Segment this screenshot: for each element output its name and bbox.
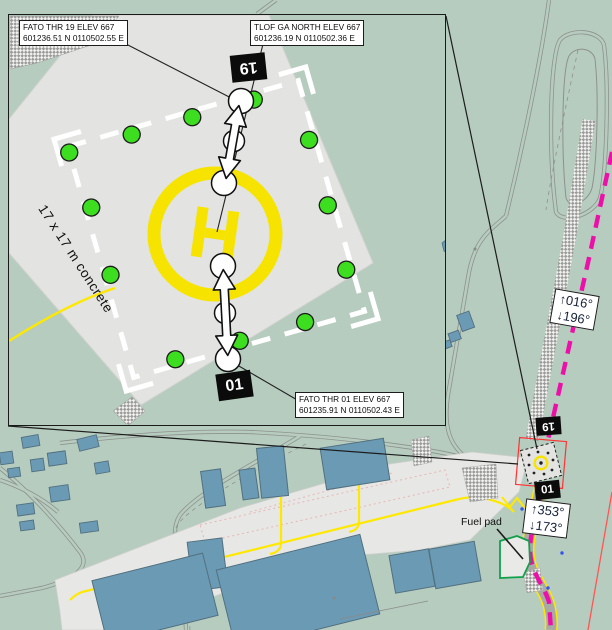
- south-bearing-down: ↓173°: [528, 517, 563, 537]
- fato-thr01-line2: 601235.91 N 0110502.43 E: [299, 405, 400, 416]
- fuel-pad-outline: [500, 536, 530, 578]
- heliport-chart: FATO THR 19 ELEV 667 601236.51 N 0110502…: [0, 0, 612, 630]
- map-thr19-badge: 19: [535, 416, 561, 436]
- inset-thr01-badge: 01: [215, 370, 253, 402]
- tlof-label: TLOF GA NORTH ELEV 667 601236.19 N 01105…: [250, 20, 364, 46]
- tlof-line2: 601236.19 N 0110502.36 E: [254, 33, 360, 44]
- fuel-pad-label: Fuel pad: [461, 516, 502, 528]
- inset-thr19-badge: 19: [230, 52, 268, 83]
- fato-inset-panel: [8, 14, 446, 426]
- fato-thr19-line2: 601236.51 N 0110502.55 E: [23, 33, 124, 44]
- fato-detail-map: [9, 15, 446, 426]
- fato-thr01-label: FATO THR 01 ELEV 667 601235.91 N 0110502…: [295, 392, 404, 418]
- fato-thr19-line1: FATO THR 19 ELEV 667: [23, 22, 124, 33]
- south-bearing-label: ↑353° ↓173°: [522, 498, 571, 538]
- tlof-line1: TLOF GA NORTH ELEV 667: [254, 22, 360, 33]
- fato-thr01-line1: FATO THR 01 ELEV 667: [299, 394, 400, 405]
- fato-thr19-label: FATO THR 19 ELEV 667 601236.51 N 0110502…: [19, 20, 128, 46]
- north-bearing-label: ↑016° ↓196°: [549, 288, 600, 331]
- map-thr01-badge: 01: [534, 480, 561, 501]
